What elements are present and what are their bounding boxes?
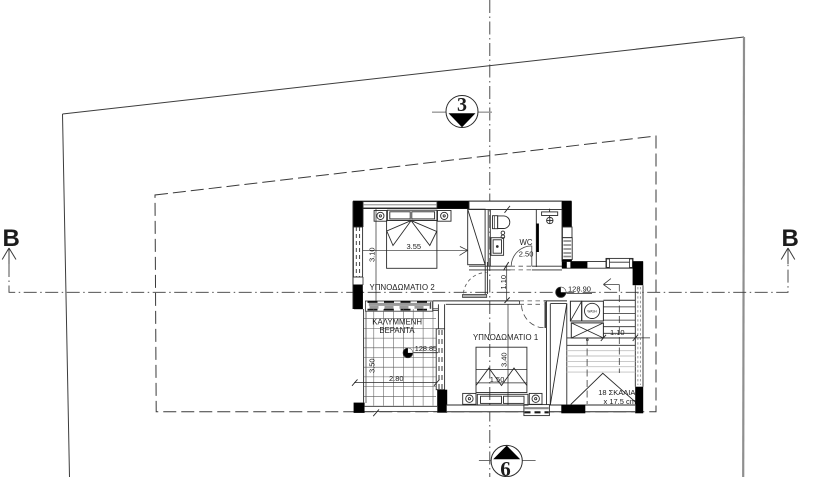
- svg-text:WC: WC: [520, 238, 533, 247]
- svg-text:x 17.5 cm: x 17.5 cm: [604, 397, 637, 406]
- svg-text:B: B: [782, 225, 799, 252]
- svg-text:3.50: 3.50: [367, 358, 376, 373]
- svg-text:18 ΣΚΑΛΙΑ: 18 ΣΚΑΛΙΑ: [598, 388, 635, 397]
- svg-text:B: B: [3, 225, 20, 252]
- svg-text:128.90: 128.90: [568, 285, 591, 294]
- svg-text:3.55: 3.55: [407, 242, 422, 251]
- svg-text:128.85: 128.85: [415, 344, 437, 353]
- svg-text:ΒΕΡΑΝΤΑ: ΒΕΡΑΝΤΑ: [379, 326, 415, 335]
- svg-text:2.80: 2.80: [389, 374, 404, 383]
- svg-text:3.10: 3.10: [368, 247, 377, 262]
- svg-text:6: 6: [500, 457, 511, 477]
- svg-text:3.40: 3.40: [500, 352, 509, 367]
- svg-text:1.10: 1.10: [499, 275, 508, 290]
- svg-text:1.50: 1.50: [490, 375, 505, 384]
- svg-text:ΥΠΝΟΔΩΜΑΤΙΟ 2: ΥΠΝΟΔΩΜΑΤΙΟ 2: [370, 283, 435, 292]
- svg-text:WASH: WASH: [587, 309, 597, 313]
- svg-text:3: 3: [457, 94, 467, 116]
- svg-text:1.10: 1.10: [610, 328, 625, 337]
- svg-text:ΥΠΝΟΔΩΜΑΤΙΟ 1: ΥΠΝΟΔΩΜΑΤΙΟ 1: [473, 333, 538, 342]
- svg-text:2.50: 2.50: [519, 249, 534, 258]
